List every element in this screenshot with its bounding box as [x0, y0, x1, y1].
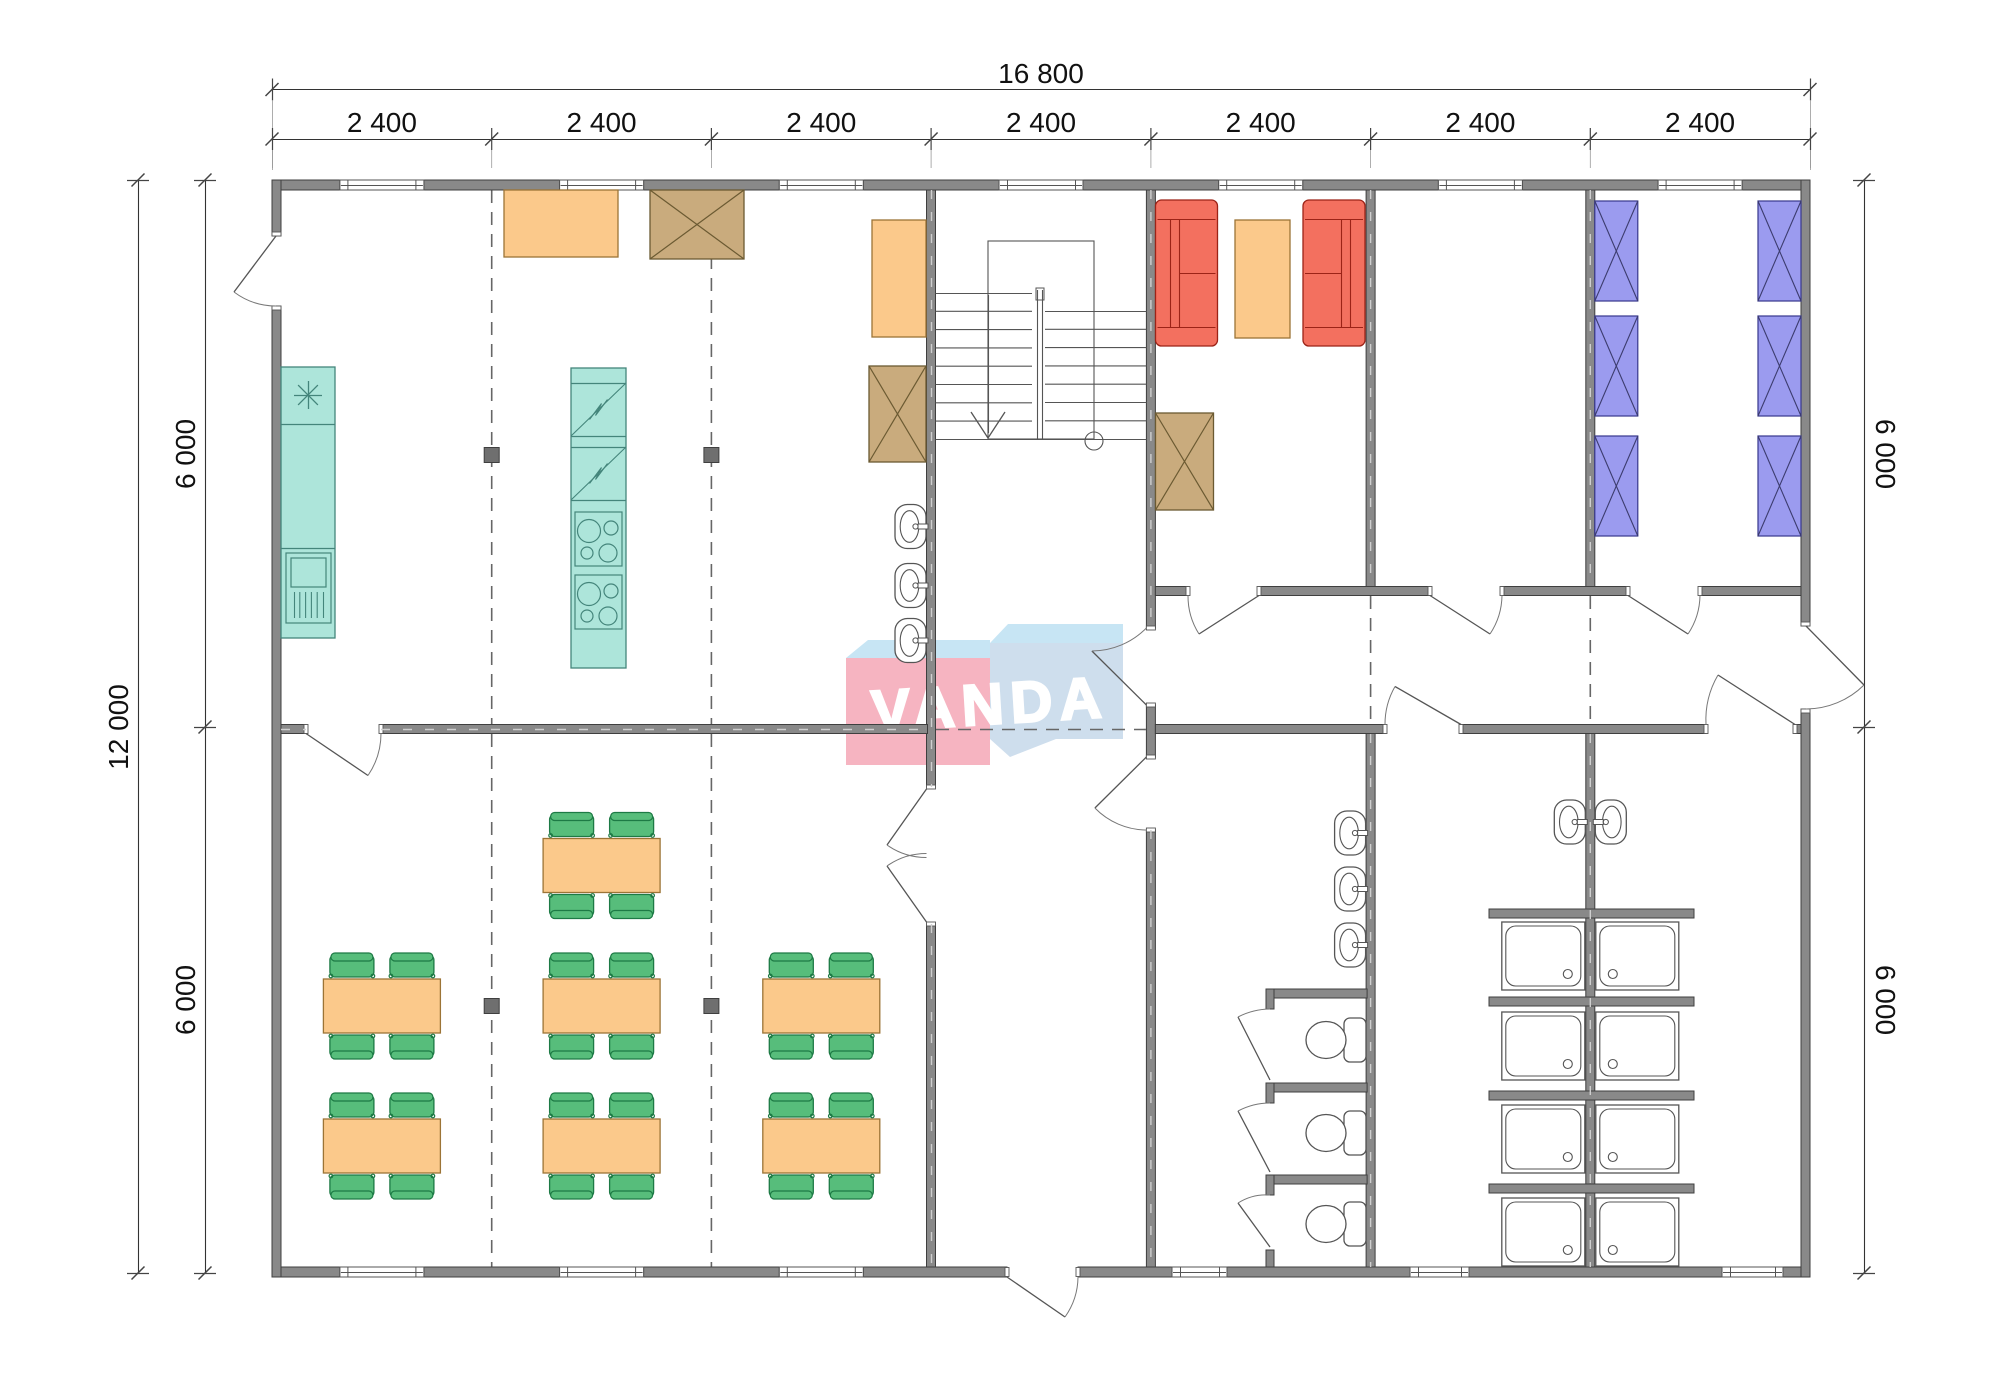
svg-text:2 400: 2 400 — [786, 107, 856, 138]
svg-text:16 800: 16 800 — [998, 58, 1084, 89]
svg-text:2 400: 2 400 — [1445, 107, 1515, 138]
svg-text:6 000: 6 000 — [170, 965, 201, 1035]
svg-text:2 400: 2 400 — [1226, 107, 1296, 138]
svg-text:6 000: 6 000 — [1870, 419, 1901, 489]
svg-text:6 000: 6 000 — [170, 419, 201, 489]
svg-text:6 000: 6 000 — [1870, 965, 1901, 1035]
svg-text:2 400: 2 400 — [567, 107, 637, 138]
svg-text:2 400: 2 400 — [1665, 107, 1735, 138]
svg-text:2 400: 2 400 — [1006, 107, 1076, 138]
svg-text:2 400: 2 400 — [347, 107, 417, 138]
svg-text:12 000: 12 000 — [103, 684, 134, 770]
